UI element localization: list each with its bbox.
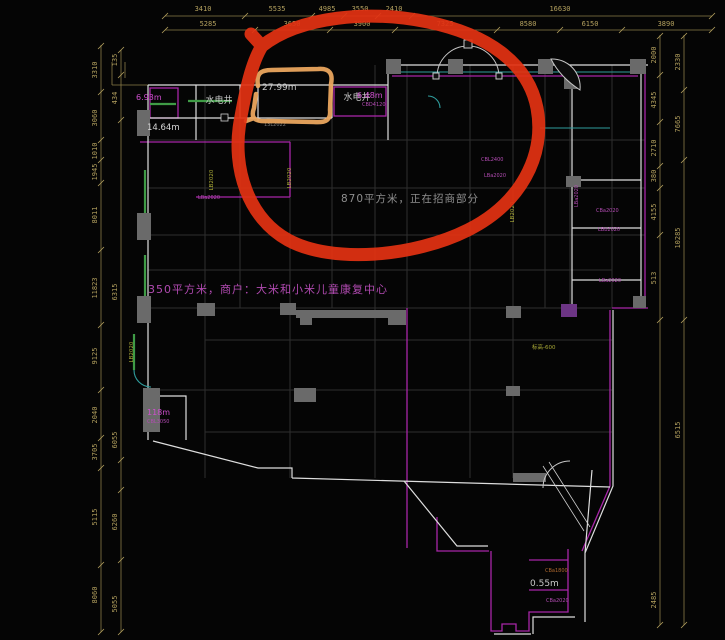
dim-top: 3410 — [195, 5, 212, 13]
beam-tag-cba2020-a: CBa2020 — [596, 208, 619, 214]
measure-055: 0.55m — [530, 579, 559, 589]
dim-left: 3060 — [91, 110, 99, 127]
dim-top: 6150 — [582, 20, 599, 28]
dim-left: 9125 — [91, 348, 99, 365]
column-purple — [561, 304, 577, 317]
beam-tag-lb2020-v3: LB2020 — [209, 169, 215, 190]
dim-left: 3705 — [91, 444, 99, 461]
measure-693: 6.93m — [136, 93, 162, 102]
dim-left: 1010 — [91, 143, 99, 160]
door-arcs — [221, 40, 580, 488]
door-leaf — [221, 114, 228, 121]
dim-top: 5285 — [200, 20, 217, 28]
dim-left: 434 — [111, 92, 119, 105]
beam-tag-lba2020-a: LBa2020 — [484, 173, 506, 179]
dim-left: 6315 — [111, 284, 119, 301]
door-leaf — [496, 73, 502, 79]
beam-tag-lbb2020: LBb2020 — [598, 227, 620, 233]
dim-left: 3310 — [91, 62, 99, 79]
door-leaf — [433, 73, 439, 79]
dim-left: 1945 — [91, 164, 99, 181]
area-870-label: 870平方米，正在招商部分 — [341, 192, 479, 205]
dim-right: 10285 — [674, 227, 682, 248]
dim-right: 513 — [650, 272, 658, 285]
dim-top: 3890 — [658, 20, 675, 28]
beam-tag-cbl3050: CBL3050 — [147, 419, 169, 425]
dim-left: 8011 — [91, 207, 99, 224]
floorplan-canvas: 水电井 水电井 870平方米，正在招商部分 350平方米，商户：大米和小米儿童康… — [0, 0, 725, 640]
measure-648: 6.48m — [357, 91, 383, 100]
dim-right: 4345 — [650, 92, 658, 109]
walls-white — [148, 65, 648, 634]
beam-tag-lba2020-b: LBa2020 — [599, 278, 621, 284]
dim-left: 135 — [111, 54, 119, 67]
measure-118: 118m — [147, 408, 170, 417]
dim-top: 4985 — [319, 5, 336, 13]
beam-tag-lba2020-c: LBa2020 — [198, 195, 220, 201]
dim-left: 2040 — [91, 407, 99, 424]
utility-well-left-label: 水电井 — [205, 94, 232, 106]
dim-left: 5115 — [91, 509, 99, 526]
dim-right: 4155 — [650, 204, 658, 221]
cad-floorplan-screenshot: 水电井 水电井 870平方米，正在招商部分 350平方米，商户：大米和小米儿童康… — [0, 0, 725, 640]
dim-top: 16630 — [549, 5, 570, 13]
elevation-note: 标高-600 — [532, 343, 556, 351]
dim-left: 6055 — [111, 432, 119, 449]
dim-top: 5535 — [269, 5, 286, 13]
dim-left: 5055 — [111, 596, 119, 613]
measure-2799: 27.99m — [262, 83, 297, 93]
measure-1464: 14.64m — [147, 123, 180, 133]
dim-right: 2485 — [650, 592, 658, 609]
dim-left: 6260 — [111, 514, 119, 531]
beam-tag-cba1800: CBa1800 — [545, 568, 568, 574]
beam-tag-cbd4120: CBD4120 — [362, 102, 386, 108]
dim-left: 11823 — [91, 277, 99, 298]
dim-right: 2000 — [650, 47, 658, 64]
beam-tag-lba2020-v2: LBa2020 — [574, 185, 580, 207]
grid-lines — [148, 65, 645, 478]
dim-top: 8580 — [520, 20, 537, 28]
dim-right: 2330 — [674, 54, 682, 71]
dim-right: 380 — [650, 170, 658, 183]
beam-tag-lb2020-v4: LB2020 — [129, 341, 135, 362]
beam-tag-cbl2400: CBL2400 — [481, 157, 503, 163]
dim-left: 8060 — [91, 587, 99, 604]
area-350-label: 350平方米，商户：大米和小米儿童康复中心 — [148, 282, 388, 296]
dim-right: 7665 — [674, 116, 682, 133]
orange-rectangle-annotation — [246, 69, 332, 122]
beam-tag-lb2020-v5: LB2020 — [287, 167, 293, 188]
dim-right: 2710 — [650, 140, 658, 157]
beam-tag-cba2020-box: CBa2020 — [546, 598, 569, 604]
dim-right: 6515 — [674, 422, 682, 439]
